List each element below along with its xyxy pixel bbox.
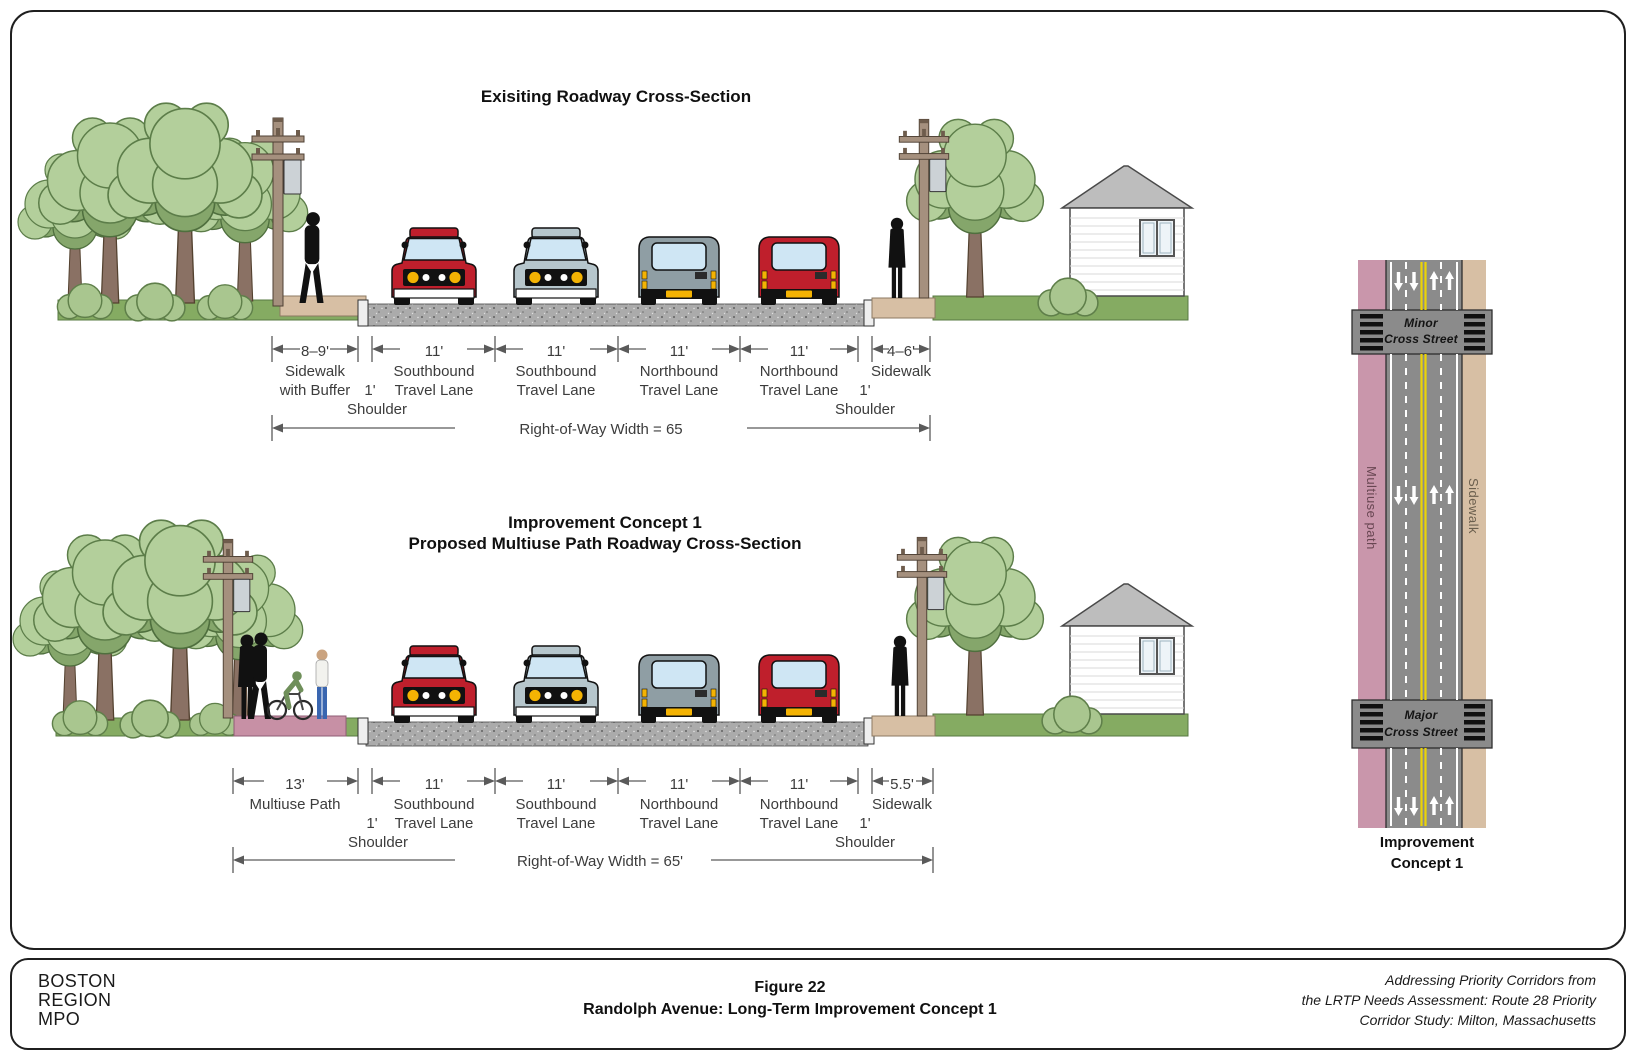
dim-width: 1' <box>364 382 375 399</box>
tree-cluster <box>18 103 308 303</box>
pedestrian <box>891 636 908 716</box>
dim-width: 11' <box>670 343 688 360</box>
car-red-rear <box>759 237 839 305</box>
dim-label: Southbound <box>394 796 475 813</box>
cyclist <box>268 671 312 719</box>
figure-number: Figure 22 <box>754 977 825 999</box>
org-name-line3: MPO <box>38 1010 80 1029</box>
dim-label: Multiuse Path <box>250 796 341 813</box>
dim-label: Sidewalk <box>871 363 931 380</box>
pedestrian <box>888 218 905 298</box>
dim-width: 11' <box>670 776 688 793</box>
dim-label: Southbound <box>516 363 597 380</box>
dim-width: 11' <box>425 776 443 793</box>
dim-label: Travel Lane <box>640 382 719 399</box>
car-gray-rear <box>639 655 719 723</box>
dim-width: 11' <box>790 343 808 360</box>
dim-label: Southbound <box>394 363 475 380</box>
dim-label: Shoulder <box>347 401 407 418</box>
curb <box>358 718 368 744</box>
bushes <box>52 700 240 738</box>
dim-label: Northbound <box>640 796 718 813</box>
dim-width: 11' <box>547 343 565 360</box>
dim-label: Travel Lane <box>760 382 839 399</box>
dim-label: Sidewalk <box>285 363 345 380</box>
dim-label: Northbound <box>760 363 838 380</box>
car-red-front <box>392 646 476 723</box>
dim-label: Travel Lane <box>517 382 596 399</box>
concept1-title-line1: Improvement Concept 1 <box>508 513 702 533</box>
dim-label: Northbound <box>640 363 718 380</box>
dim-width: 1' <box>366 815 377 832</box>
curb <box>358 300 368 326</box>
car-gray-front <box>514 228 598 305</box>
pedestrian <box>316 650 328 720</box>
sidewalk-strip-label: Sidewalk <box>1466 478 1481 534</box>
minor-cross-street-label-line2: Cross Street <box>1384 332 1458 346</box>
dim-label: Travel Lane <box>395 815 474 832</box>
org-name-line2: REGION <box>38 991 111 1010</box>
car-red-rear <box>759 655 839 723</box>
roadway <box>366 304 868 326</box>
right-of-way-label: Right-of-Way Width = 65' <box>517 853 683 870</box>
existing-cross-section-scene <box>18 103 1192 326</box>
major-cross-street-label-line1: Major <box>1404 708 1437 722</box>
dim-width: 8–9' <box>301 343 329 360</box>
dim-width: 11' <box>790 776 808 793</box>
dim-width: 1' <box>859 815 870 832</box>
house <box>1062 166 1192 296</box>
dim-label: Travel Lane <box>395 382 474 399</box>
dim-label: Travel Lane <box>760 815 839 832</box>
car-red-front <box>392 228 476 305</box>
dim-label: Southbound <box>516 796 597 813</box>
bushes <box>57 283 252 321</box>
dim-label: Shoulder <box>835 401 895 418</box>
multiuse-path-strip-label: Multiuse path <box>1364 466 1379 550</box>
sidewalk <box>872 298 935 318</box>
car-gray-rear <box>639 237 719 305</box>
concept1-title-line2: Proposed Multiuse Path Roadway Cross-Sec… <box>409 534 802 554</box>
org-name-line1: BOSTON <box>38 972 116 991</box>
citation-line2: the LRTP Needs Assessment: Route 28 Prio… <box>1302 990 1596 1010</box>
dim-label: Travel Lane <box>640 815 719 832</box>
house <box>1062 584 1192 714</box>
dim-label: Sidewalk <box>872 796 932 813</box>
dim-width: 11' <box>425 343 443 360</box>
dim-label: Northbound <box>760 796 838 813</box>
dim-label: with Buffer <box>280 382 351 399</box>
plan-caption-line1: Improvement <box>1380 834 1474 851</box>
dim-width: 1' <box>859 382 870 399</box>
dim-width: 4–6' <box>887 343 915 360</box>
diagram-artwork <box>0 0 1632 1056</box>
sidewalk <box>872 716 935 736</box>
citation-line3: Corridor Study: Milton, Massachusetts <box>1359 1010 1596 1030</box>
tree-cluster <box>13 520 303 720</box>
existing-section-title: Exisiting Roadway Cross-Section <box>481 87 751 107</box>
dim-label: Shoulder <box>835 834 895 851</box>
dim-width: 5.5' <box>890 776 914 793</box>
dim-label: Travel Lane <box>517 815 596 832</box>
dim-width: 13' <box>285 776 305 793</box>
right-of-way-label: Right-of-Way Width = 65 <box>519 421 682 438</box>
dim-label: Shoulder <box>348 834 408 851</box>
roadway <box>366 722 868 746</box>
figure-title: Randolph Avenue: Long-Term Improvement C… <box>583 999 997 1021</box>
concept1-cross-section-scene <box>13 520 1192 746</box>
minor-cross-street-label-line1: Minor <box>1404 316 1438 330</box>
dim-width: 11' <box>547 776 565 793</box>
major-cross-street-label-line2: Cross Street <box>1384 725 1458 739</box>
figure-page: Exisiting Roadway Cross-Section 8–9' Sid… <box>0 0 1632 1056</box>
plan-caption-line2: Concept 1 <box>1391 855 1464 872</box>
car-gray-front <box>514 646 598 723</box>
citation-line1: Addressing Priority Corridors from <box>1385 970 1596 990</box>
